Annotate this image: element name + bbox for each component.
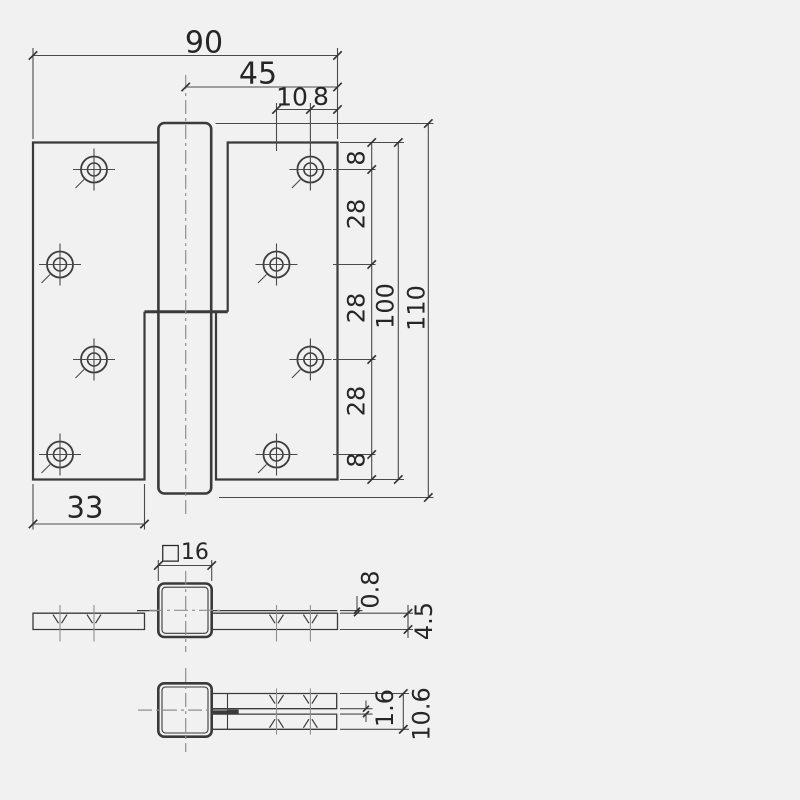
- dim-overall-height: 110: [403, 285, 431, 331]
- knuckle-barrel: [158, 123, 211, 494]
- right-leaf-outline: [216, 143, 338, 480]
- dim-hole-pitch: 8: [343, 150, 371, 165]
- screw-hole: [289, 149, 331, 191]
- front-view: 90 45 10 8 8 28 28 28 8 100 110 33: [29, 26, 434, 530]
- left-leaf-outline: [33, 143, 159, 480]
- dim-hole-edge-offset: 8: [313, 82, 329, 111]
- dim-knuckle-square: □16: [160, 540, 209, 565]
- top-view-open: □16 0.8 4.5: [33, 540, 438, 652]
- dim-hole-pitch: 28: [343, 386, 371, 417]
- screw-hole: [39, 244, 81, 286]
- dim-leaf-width: 33: [67, 491, 104, 525]
- top-view-folded: 1.6 10.6: [138, 668, 436, 752]
- dim-hole-pitch: 8: [343, 452, 371, 467]
- dim-folded-thickness: 10.6: [408, 687, 436, 740]
- dim-hole-column-offset: 10: [276, 83, 308, 112]
- screw-hole: [289, 339, 331, 381]
- dim-overall-width: 90: [185, 26, 223, 61]
- hinge-technical-drawing: 90 45 10 8 8 28 28 28 8 100 110 33: [0, 0, 800, 800]
- countersink-marks: [270, 689, 318, 735]
- screw-hole: [256, 244, 298, 286]
- dim-hole-pitch: 28: [343, 199, 371, 230]
- screw-hole: [73, 149, 115, 191]
- dim-surface-step: 0.8: [357, 570, 385, 608]
- left-leaf-edge: [33, 613, 145, 629]
- screw-hole: [73, 339, 115, 381]
- dim-hole-pitch: 28: [343, 293, 371, 324]
- dim-center-to-edge: 45: [239, 57, 277, 92]
- lower-leaf-edge: [212, 714, 337, 729]
- screw-hole: [39, 434, 81, 476]
- dim-leaf-height: 100: [372, 283, 400, 329]
- upper-leaf-edge: [212, 694, 337, 709]
- dim-leaf-thickness: 4.5: [410, 602, 438, 640]
- screw-hole: [256, 434, 298, 476]
- dim-leaf-gap: 1.6: [371, 689, 399, 727]
